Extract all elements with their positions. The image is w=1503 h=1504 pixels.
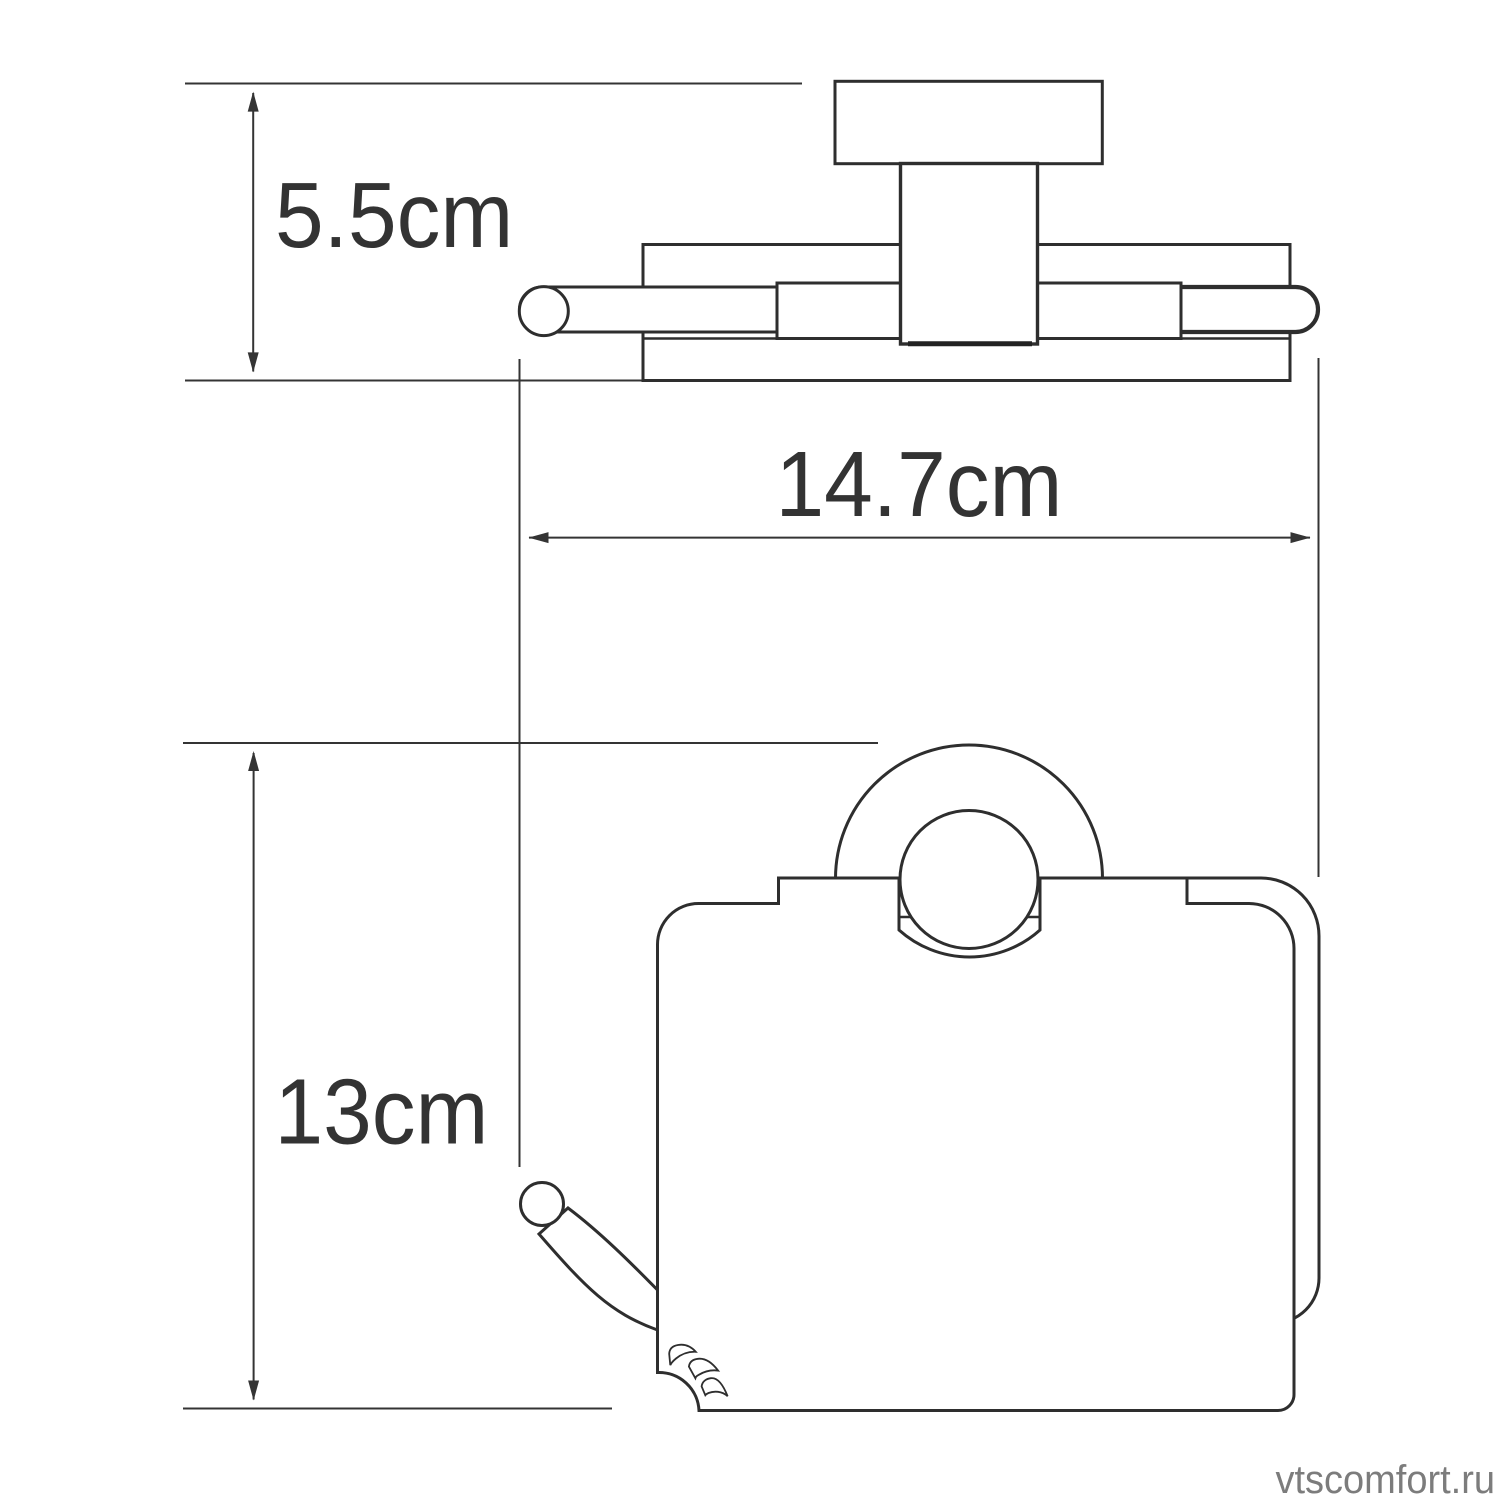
svg-text:vtscomfort.ru: vtscomfort.ru [1275,1458,1495,1502]
svg-text:13cm: 13cm [275,1060,489,1164]
svg-text:14.7cm: 14.7cm [776,432,1063,536]
svg-text:5.5cm: 5.5cm [275,163,513,267]
